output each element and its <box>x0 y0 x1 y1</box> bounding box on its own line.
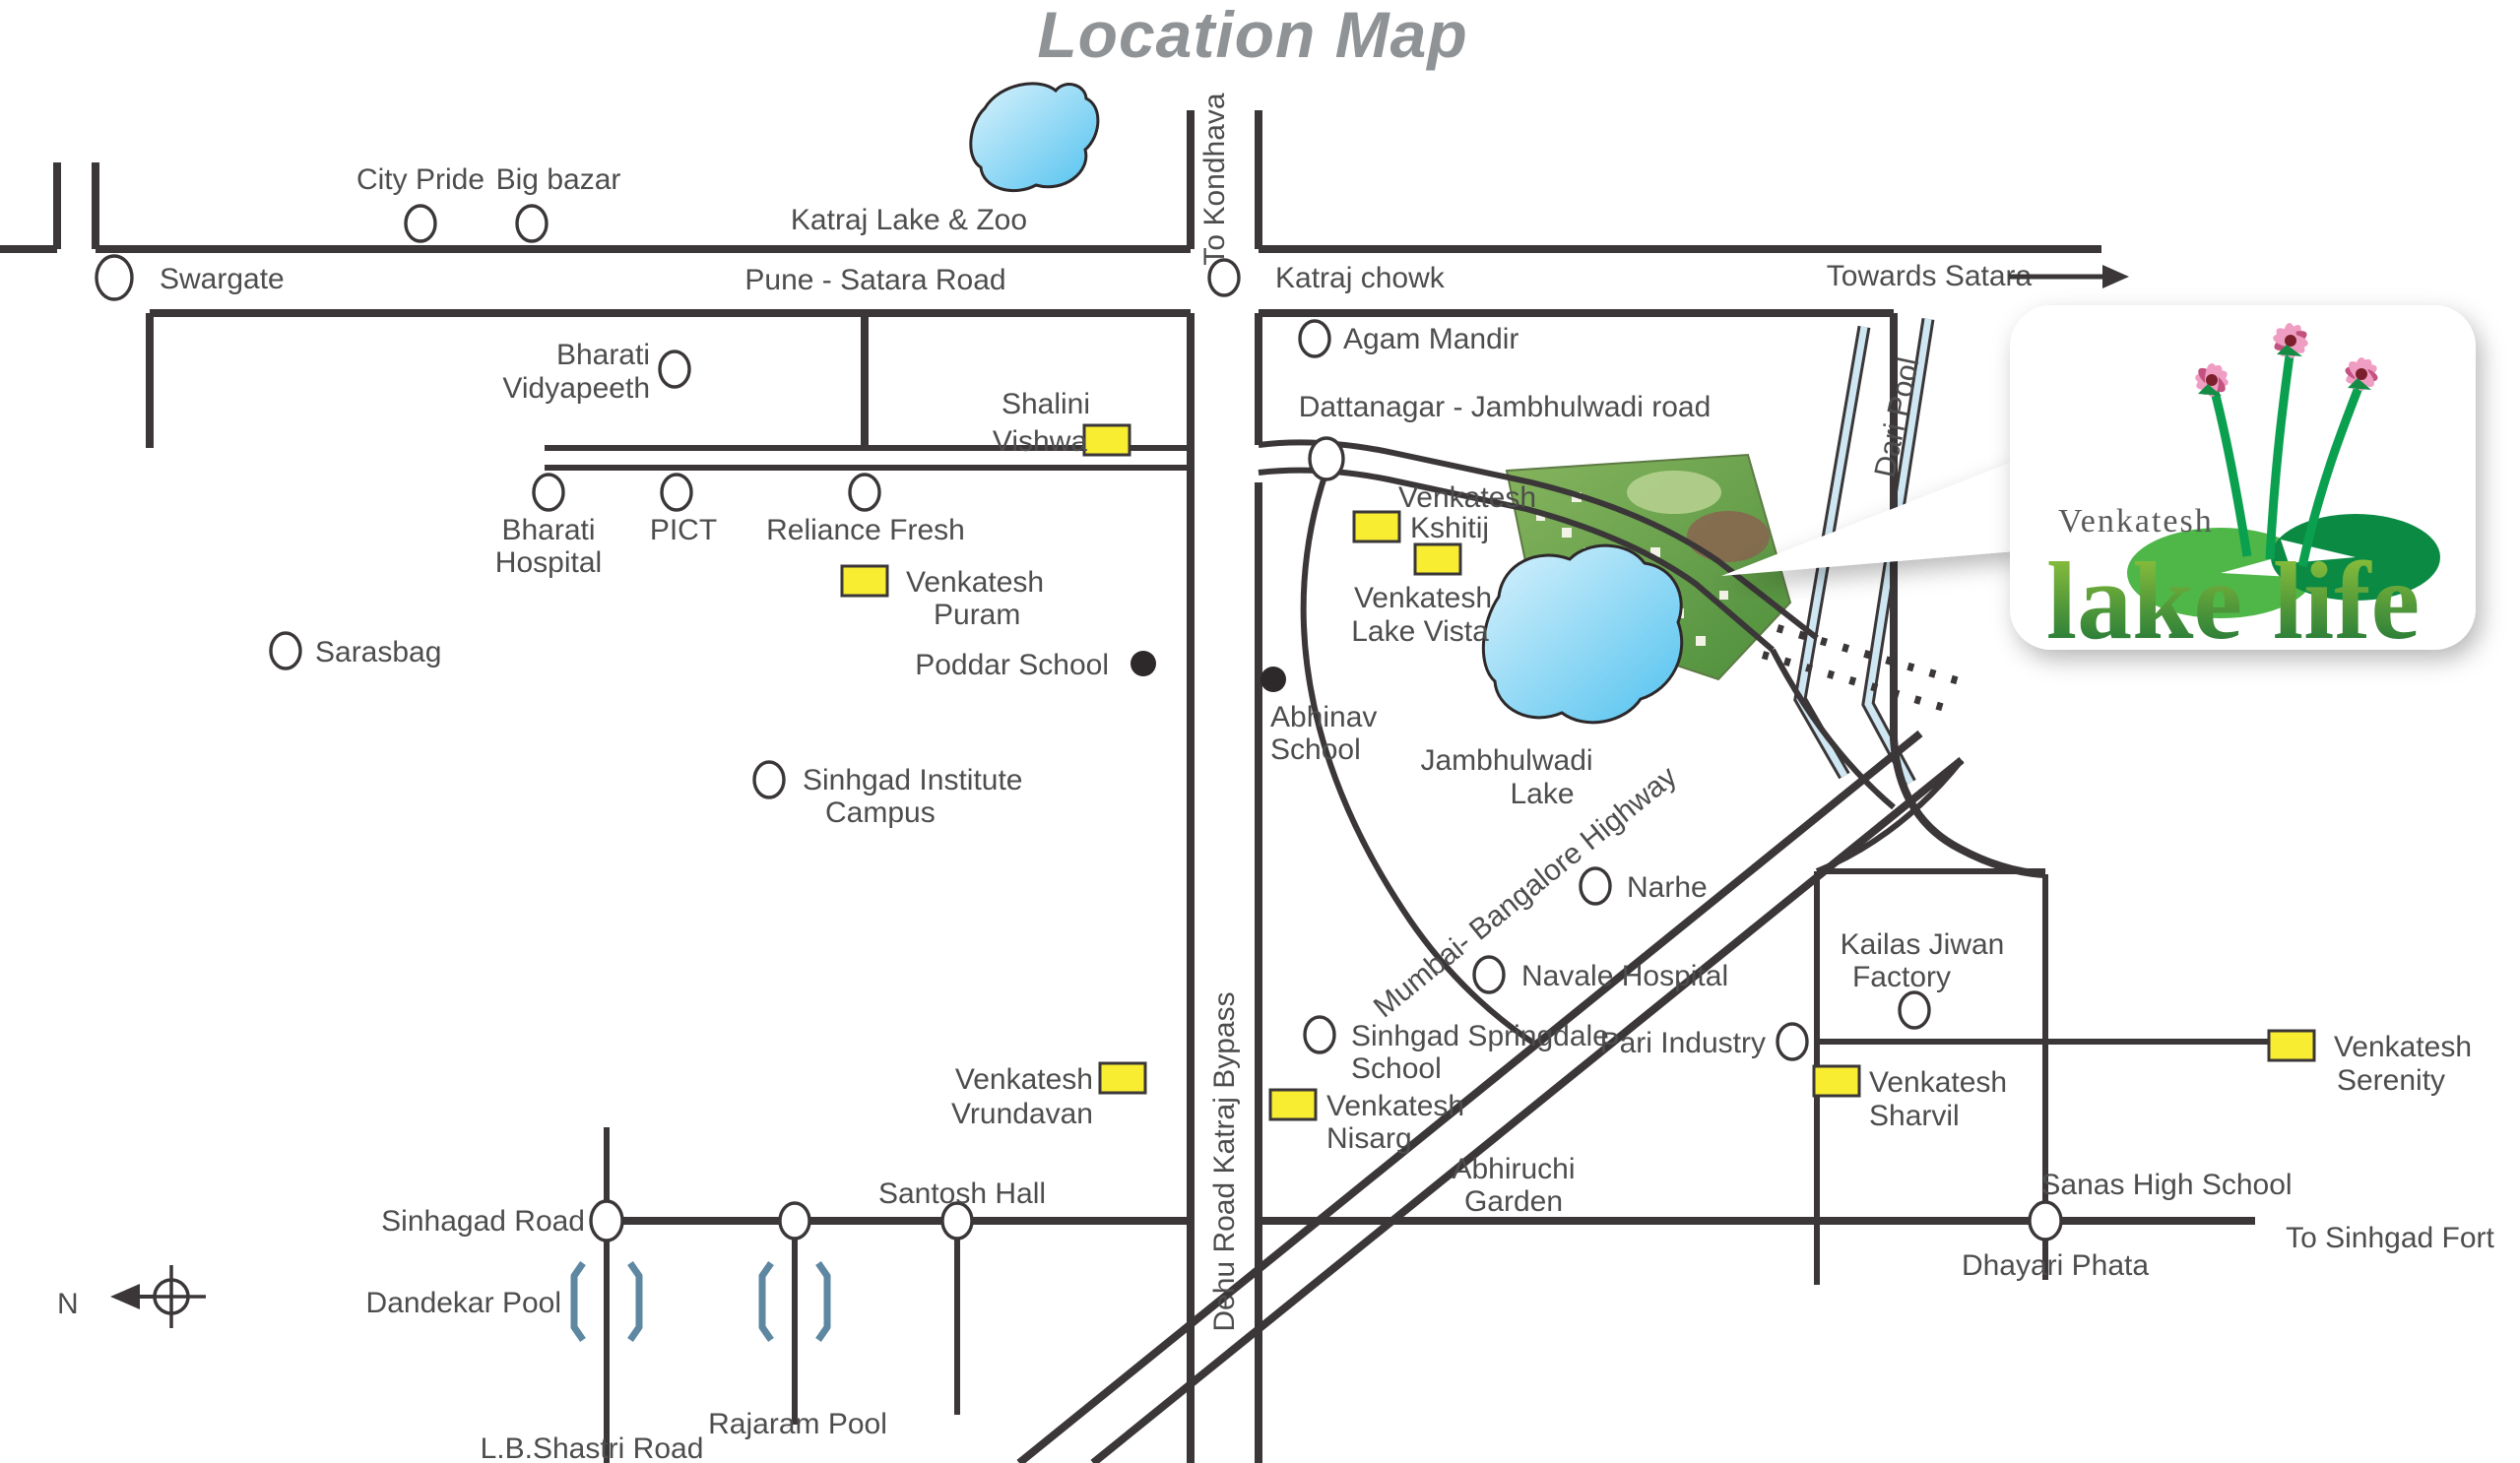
reliance-fresh-label: Reliance Fresh <box>766 514 965 546</box>
venkatesh-puram-label-2: Puram <box>934 599 1020 631</box>
abhinav-school-marker <box>1260 667 1286 692</box>
kailas-jiwan-label-1: Kailas Jiwan <box>1841 928 2005 961</box>
navale-hospital-marker <box>1474 957 1504 992</box>
map-canvas: Location Map Swargate City Pride Big baz… <box>0 0 2520 1463</box>
bharati-vidyapeeth-label-2: Vidyapeeth <box>502 372 650 405</box>
city-pride-label: City Pride <box>356 163 485 196</box>
dandekar-pool-label: Dandekar Pool <box>366 1287 561 1319</box>
dehu-road-bypass-label: Dehu Road Katraj Bypass <box>1208 991 1241 1331</box>
swargate-marker <box>97 256 132 299</box>
venkatesh-lake-vista-label-2: Lake Vista <box>1351 615 1489 648</box>
kailas-jiwan-marker <box>1900 992 1929 1028</box>
logo-word-lake: lake <box>2046 541 2242 663</box>
kailas-jiwan-label-2: Factory <box>1852 961 1951 993</box>
sinhgad-institute-marker <box>754 762 784 797</box>
road-junction-marker <box>780 1203 809 1239</box>
agam-mandir-marker <box>1300 321 1329 356</box>
sinhagad-road-label: Sinhagad Road <box>381 1205 585 1238</box>
venkatesh-serenity-marker <box>2269 1031 2314 1060</box>
pari-industry-label: Pari Industry <box>1600 1027 1766 1059</box>
shalini-vishwa-marker <box>1084 425 1130 455</box>
sarasbag-marker <box>271 633 300 668</box>
venkatesh-lake-vista-marker <box>1415 544 1460 574</box>
abhiruchi-garden-label-2: Garden <box>1464 1185 1563 1218</box>
logo-word-life: life <box>2273 541 2420 663</box>
venkatesh-kshitij-label-1: Venkatesh <box>1398 481 1536 514</box>
logo-brand-text: Venkatesh <box>2058 503 2214 540</box>
bharati-hospital-label-1: Bharati <box>501 514 595 546</box>
venkatesh-serenity-label-2: Serenity <box>2337 1064 2445 1097</box>
sinhgad-institute-label-2: Campus <box>825 796 936 829</box>
poddar-school-label: Poddar School <box>915 649 1109 681</box>
katraj-chowk-label: Katraj chowk <box>1275 262 1446 294</box>
abhinav-school-label-2: School <box>1270 733 1361 766</box>
venkatesh-kshitij-marker <box>1354 512 1399 541</box>
venkatesh-lake-vista-label-1: Venkatesh <box>1354 582 1492 614</box>
venkatesh-sharvil-marker <box>1814 1066 1859 1096</box>
venkatesh-nisarg-label-1: Venkatesh <box>1326 1090 1464 1122</box>
venkatesh-nisarg-label-2: Nisarg <box>1326 1122 1412 1155</box>
bharati-hospital-label-2: Hospital <box>495 546 602 579</box>
big-bazar-marker <box>517 206 547 241</box>
jambhulwadi-lake-label-1: Jambhulwadi <box>1420 744 1592 777</box>
narhe-marker <box>1581 868 1610 904</box>
agam-mandir-label: Agam Mandir <box>1343 323 1518 355</box>
venkatesh-vrundavan-label-1: Venkatesh <box>955 1063 1093 1096</box>
dhayari-phata-marker <box>2030 1202 2061 1240</box>
location-map: Location Map Swargate City Pride Big baz… <box>0 0 2520 1463</box>
santosh-hall-label: Santosh Hall <box>878 1177 1046 1210</box>
reliance-fresh-marker <box>850 475 879 510</box>
bharati-hospital-marker <box>534 475 563 510</box>
sinhgad-springdale-marker <box>1305 1017 1334 1052</box>
dattanagar-junction-marker <box>1310 438 1343 479</box>
venkatesh-sharvil-label-2: Sharvil <box>1869 1100 1960 1132</box>
sinhgad-springdale-label-1: Sinhgad Springdale <box>1351 1020 1609 1052</box>
compass-icon: N <box>57 1265 206 1328</box>
venkatesh-puram-marker <box>842 566 887 596</box>
sarasbag-label: Sarasbag <box>315 636 441 668</box>
dhayari-phata-label: Dhayari Phata <box>1962 1249 2149 1282</box>
bharati-vidyapeeth-marker <box>660 351 689 387</box>
sanas-high-school-label: Sanas High School <box>2040 1169 2292 1201</box>
venkatesh-nisarg-marker <box>1270 1090 1316 1119</box>
shalini-vishwa-label-1: Shalini <box>1002 388 1090 420</box>
venkatesh-vrundavan-marker <box>1100 1063 1145 1093</box>
lb-shastri-road-label: L.B.Shastri Road <box>481 1432 704 1463</box>
pict-label: PICT <box>650 514 717 546</box>
sinhgad-institute-label-1: Sinhgad Institute <box>803 764 1023 796</box>
rajaram-pool-label: Rajaram Pool <box>708 1408 887 1440</box>
katraj-lake-shape <box>971 84 1098 191</box>
road-network <box>0 110 2280 1463</box>
abhinav-school-label-1: Abhinav <box>1270 701 1377 733</box>
to-kondhava-label: To Kondhava <box>1198 93 1231 265</box>
venkatesh-vrundavan-label-2: Vrundavan <box>951 1098 1093 1130</box>
narhe-label: Narhe <box>1627 871 1708 904</box>
abhiruchi-garden-label-1: Abhiruchi <box>1452 1153 1575 1185</box>
big-bazar-label: Big bazar <box>496 163 621 196</box>
pune-satara-road-label: Pune - Satara Road <box>744 264 1005 296</box>
compass-north-label: N <box>57 1288 79 1320</box>
pari-industry-marker <box>1777 1024 1807 1059</box>
swargate-label: Swargate <box>160 263 285 295</box>
poddar-school-marker <box>1131 651 1156 676</box>
city-pride-marker <box>406 206 435 241</box>
katraj-lake-zoo-label: Katraj Lake & Zoo <box>791 204 1027 236</box>
page-title: Location Map <box>1037 0 1467 71</box>
shalini-vishwa-label-2: Vishwa <box>993 425 1087 458</box>
dattanagar-road-label: Dattanagar - Jambhulwadi road <box>1299 391 1712 423</box>
navale-hospital-label: Navale Hospital <box>1521 960 1728 992</box>
venkatesh-sharvil-label-1: Venkatesh <box>1869 1066 2007 1099</box>
towards-satara-label: Towards Satara <box>1827 260 2033 292</box>
venkatesh-serenity-label-1: Venkatesh <box>2334 1031 2472 1063</box>
venkatesh-kshitij-label-2: Kshitij <box>1410 512 1489 544</box>
bharati-vidyapeeth-label-1: Bharati <box>556 339 650 371</box>
to-sinhgad-fort-label: To Sinhgad Fort <box>2286 1222 2494 1254</box>
pict-marker <box>662 475 691 510</box>
venkatesh-puram-label-1: Venkatesh <box>906 566 1044 599</box>
sinhagad-road-marker <box>591 1201 622 1240</box>
sinhgad-springdale-label-2: School <box>1351 1052 1442 1085</box>
jambhulwadi-lake-label-2: Lake <box>1510 778 1574 810</box>
jambhulwadi-lake-shape <box>1483 545 1681 723</box>
